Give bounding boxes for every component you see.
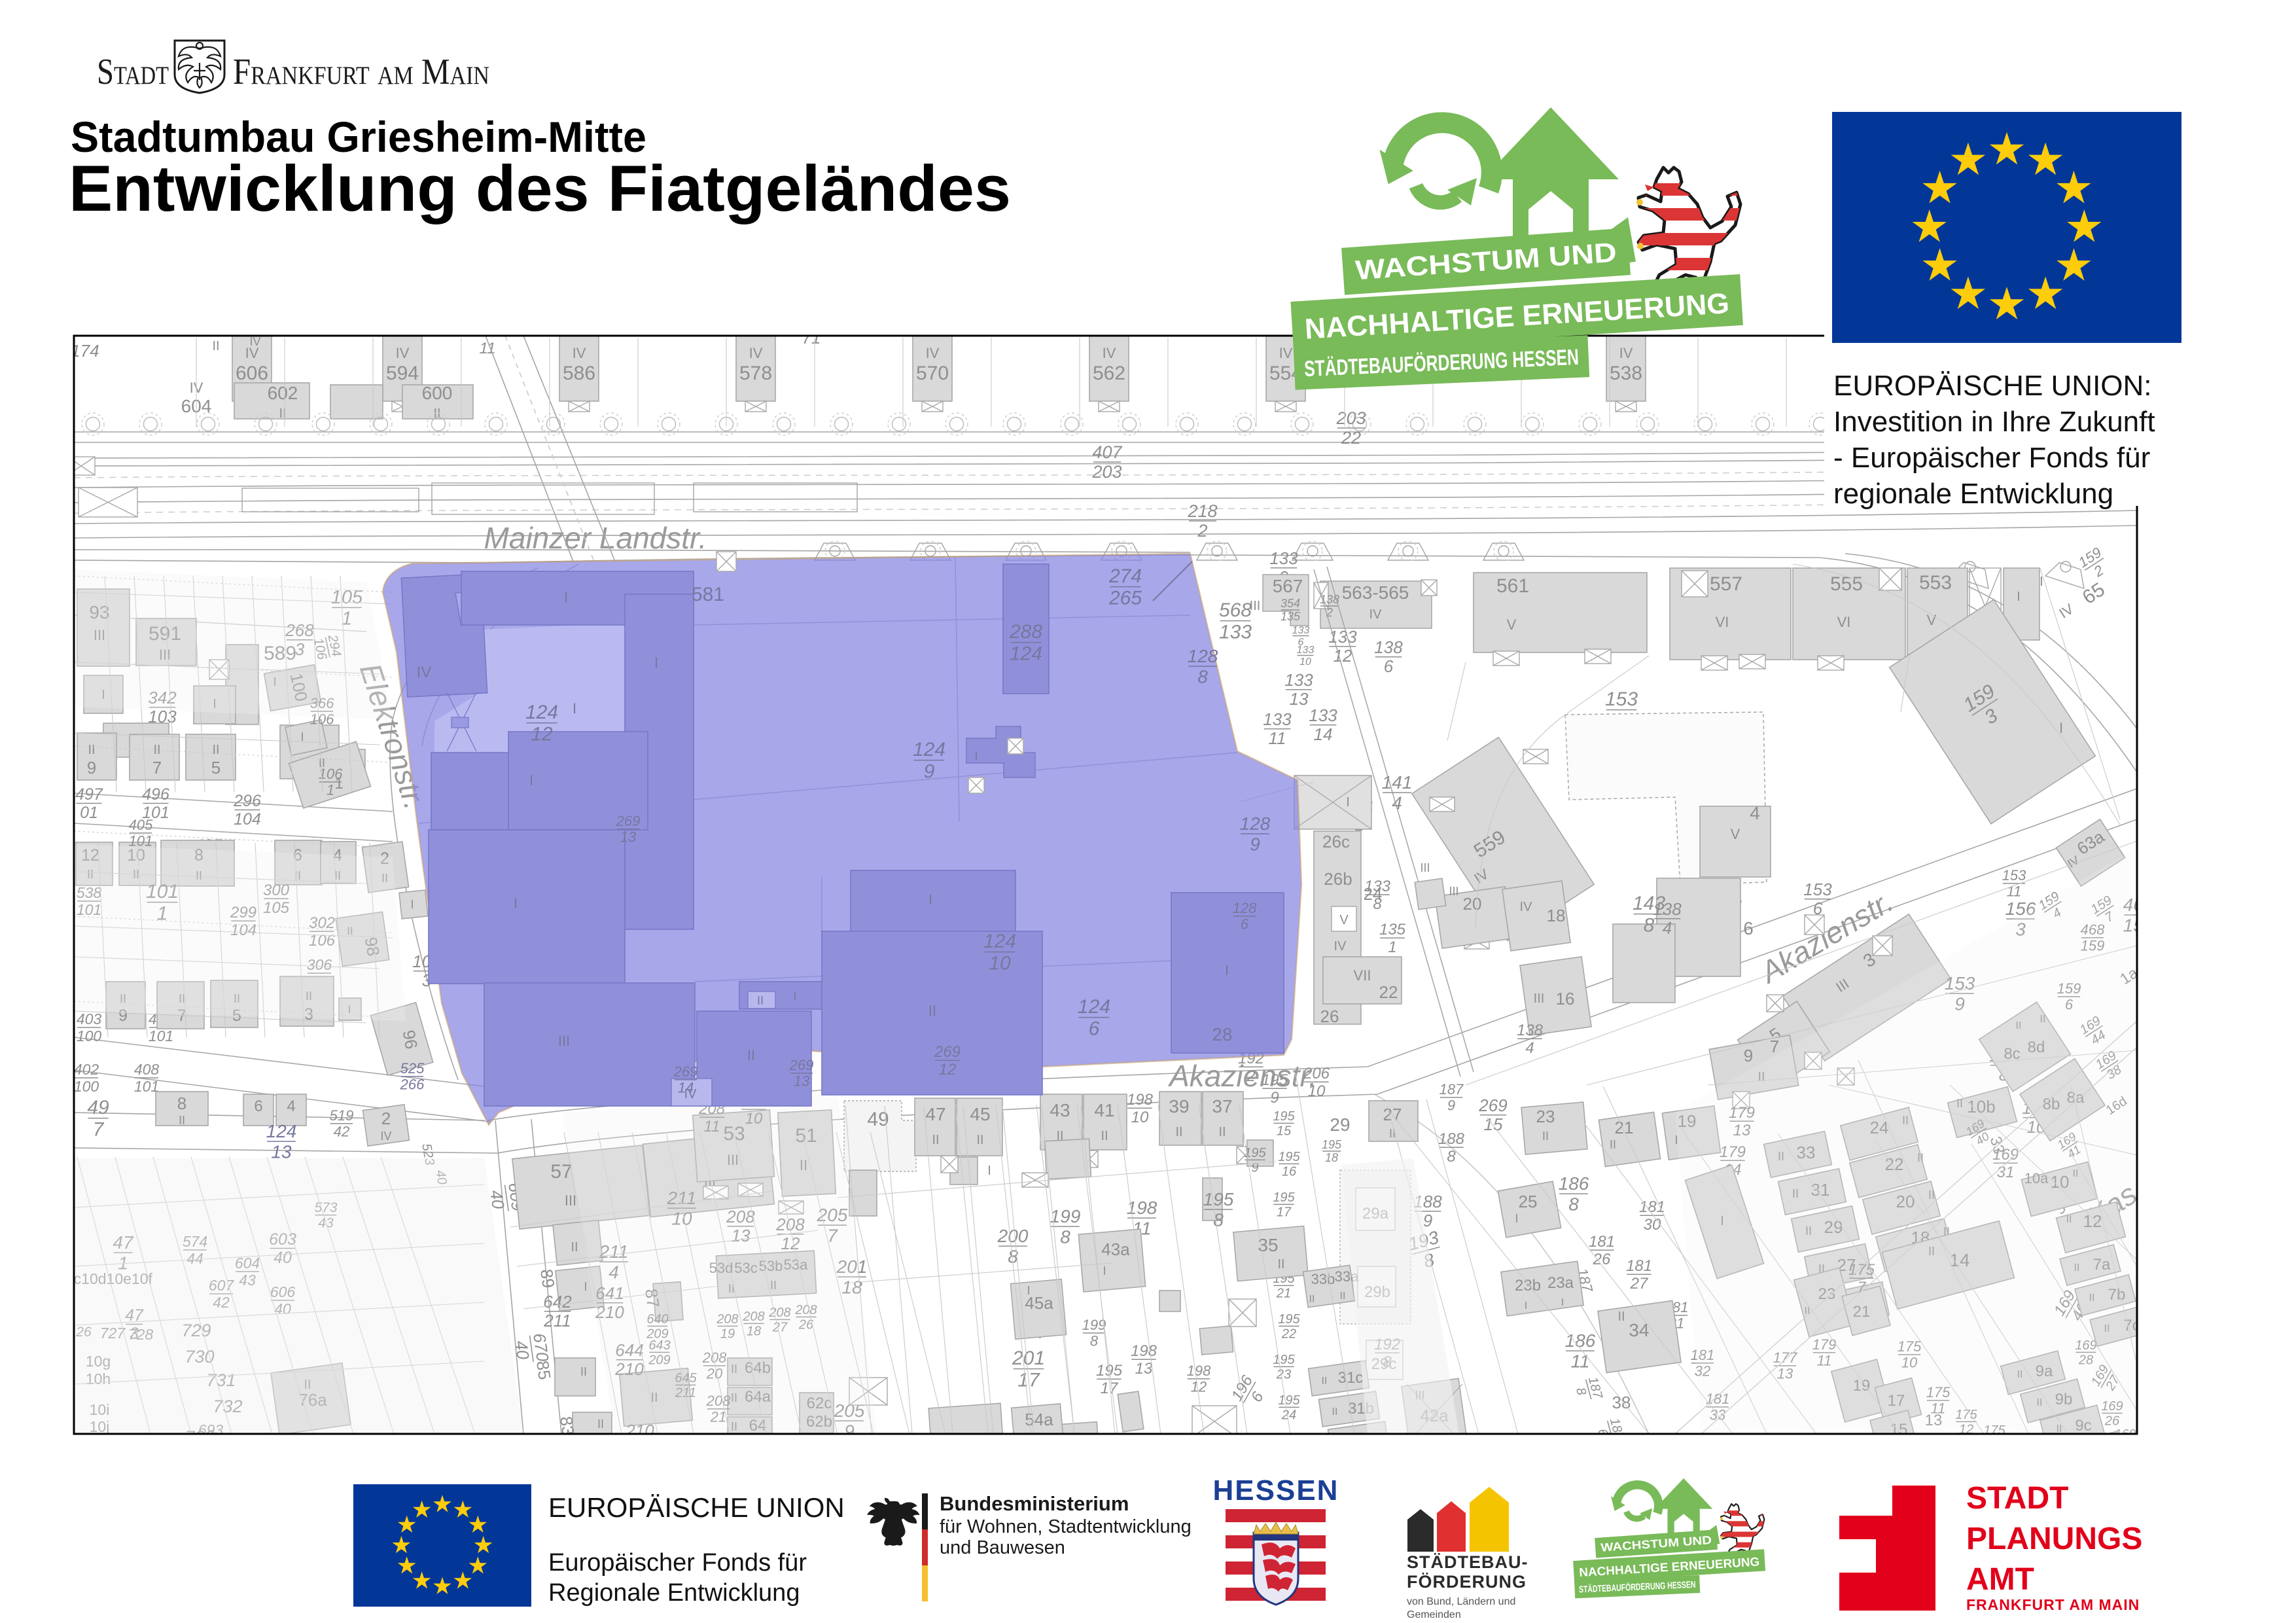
svg-text:I: I: [654, 654, 658, 671]
svg-text:13: 13: [620, 829, 637, 846]
svg-text:266: 266: [400, 1077, 425, 1093]
svg-text:49: 49: [87, 1097, 109, 1118]
svg-text:4: 4: [1663, 918, 1672, 938]
svg-text:296: 296: [233, 792, 261, 810]
svg-text:IV: IV: [1334, 939, 1347, 954]
svg-text:133: 133: [1328, 627, 1357, 647]
svg-text:181: 181: [1639, 1198, 1665, 1216]
svg-text:198: 198: [1187, 1363, 1211, 1379]
svg-text:II: II: [747, 1047, 755, 1063]
svg-text:402: 402: [74, 1061, 99, 1078]
svg-text:II: II: [932, 1133, 939, 1147]
svg-text:18: 18: [1325, 1151, 1338, 1164]
svg-text:IV: IV: [749, 345, 763, 361]
svg-text:IV: IV: [417, 664, 432, 681]
svg-text:567: 567: [1273, 576, 1303, 596]
svg-text:I: I: [2059, 720, 2063, 736]
svg-text:578: 578: [739, 363, 772, 384]
svg-text:6: 6: [1241, 916, 1249, 933]
svg-text:57: 57: [550, 1161, 572, 1183]
svg-text:IV: IV: [249, 335, 260, 348]
svg-text:IV: IV: [1520, 900, 1533, 914]
svg-text:I: I: [573, 700, 576, 717]
svg-text:557: 557: [1710, 573, 1742, 595]
svg-text:195: 195: [1273, 1190, 1295, 1205]
svg-text:II: II: [580, 1365, 587, 1378]
svg-text:VI: VI: [1716, 614, 1729, 630]
svg-text:9: 9: [1744, 1046, 1753, 1065]
svg-text:195: 195: [1203, 1189, 1234, 1209]
svg-text:2: 2: [1197, 521, 1207, 541]
svg-text:I: I: [1225, 962, 1229, 978]
svg-text:525: 525: [400, 1060, 425, 1077]
svg-text:III: III: [1420, 861, 1430, 874]
svg-text:40: 40: [511, 1339, 533, 1361]
svg-text:FRANKFURT AM MAIN: FRANKFURT AM MAIN: [1966, 1596, 2140, 1613]
svg-text:1: 1: [327, 782, 334, 798]
svg-text:AMT: AMT: [1966, 1562, 2034, 1597]
svg-text:198: 198: [1131, 1342, 1157, 1360]
svg-text:I: I: [1103, 1264, 1106, 1277]
svg-text:6: 6: [1743, 918, 1754, 938]
svg-text:V: V: [1339, 913, 1349, 927]
svg-text:128: 128: [1240, 813, 1271, 834]
svg-text:11: 11: [1269, 728, 1286, 748]
svg-text:104: 104: [234, 810, 261, 829]
svg-text:V: V: [1731, 826, 1740, 842]
svg-text:10: 10: [1299, 656, 1311, 668]
svg-text:31c: 31c: [1338, 1369, 1364, 1387]
svg-text:269: 269: [673, 1063, 698, 1080]
svg-text:und Bauwesen: und Bauwesen: [940, 1537, 1065, 1558]
svg-text:EUROPÄISCHE UNION:: EUROPÄISCHE UNION:: [1833, 370, 2152, 402]
svg-text:II: II: [1332, 1406, 1338, 1418]
svg-text:18: 18: [1547, 906, 1566, 925]
svg-text:II: II: [1175, 1125, 1182, 1139]
svg-text:188: 188: [1438, 1130, 1465, 1148]
svg-text:1: 1: [1388, 938, 1396, 956]
svg-text:4: 4: [1750, 803, 1760, 823]
svg-text:I: I: [928, 891, 932, 908]
svg-text:403: 403: [77, 1010, 102, 1027]
svg-text:496: 496: [142, 785, 169, 804]
svg-text:519: 519: [330, 1107, 354, 1124]
svg-text:186: 186: [1565, 1330, 1596, 1351]
svg-text:II: II: [88, 743, 95, 757]
svg-text:I: I: [1027, 1284, 1030, 1297]
svg-text:II: II: [757, 994, 764, 1007]
svg-text:II: II: [1542, 1130, 1549, 1143]
svg-text:23b: 23b: [1515, 1277, 1541, 1294]
svg-text:STADT: STADT: [1966, 1481, 2068, 1516]
svg-text:26b: 26b: [1324, 869, 1352, 889]
svg-text:12: 12: [939, 1061, 957, 1079]
svg-text:II: II: [1218, 1125, 1226, 1139]
svg-text:13: 13: [271, 1141, 292, 1162]
svg-text:288: 288: [1009, 621, 1042, 643]
svg-text:195: 195: [1262, 1071, 1288, 1089]
svg-text:135: 135: [1280, 610, 1301, 623]
svg-text:I: I: [584, 1280, 587, 1293]
svg-text:133: 133: [1269, 548, 1298, 568]
svg-text:15: 15: [1484, 1115, 1503, 1134]
svg-text:29: 29: [1330, 1115, 1350, 1135]
svg-text:26: 26: [1320, 1007, 1339, 1026]
svg-text:HESSEN: HESSEN: [1213, 1474, 1339, 1507]
svg-text:14: 14: [678, 1080, 694, 1096]
svg-text:124: 124: [983, 931, 1016, 952]
svg-text:01: 01: [80, 804, 98, 822]
svg-text:138: 138: [1374, 637, 1403, 657]
svg-text:I: I: [1346, 795, 1350, 810]
svg-text:6: 6: [1089, 1018, 1100, 1040]
svg-text:135: 135: [1379, 921, 1406, 938]
svg-text:8: 8: [1197, 666, 1208, 687]
svg-text:I: I: [987, 1164, 991, 1178]
svg-text:EUROPÄISCHE UNION: EUROPÄISCHE UNION: [548, 1492, 845, 1523]
svg-text:IV: IV: [380, 1130, 391, 1143]
svg-text:III: III: [558, 1033, 570, 1049]
svg-text:III: III: [1449, 885, 1458, 898]
svg-text:Frankfurt am Main: Frankfurt am Main: [233, 52, 489, 92]
svg-text:8: 8: [1447, 1148, 1456, 1166]
svg-text:28: 28: [1212, 1024, 1232, 1044]
svg-text:I: I: [564, 589, 568, 605]
svg-text:VII: VII: [1354, 967, 1371, 984]
svg-text:133: 133: [1284, 670, 1313, 690]
svg-text:2: 2: [1246, 1067, 1255, 1085]
svg-text:27: 27: [1630, 1275, 1649, 1293]
svg-text:4: 4: [1525, 1039, 1534, 1057]
svg-text:17: 17: [1277, 1205, 1292, 1219]
svg-text:274: 274: [1108, 565, 1142, 587]
svg-text:III: III: [1534, 991, 1545, 1006]
svg-text:Mainzer Landstr.: Mainzer Landstr.: [484, 521, 707, 555]
svg-text:2: 2: [381, 1109, 391, 1128]
svg-text:5: 5: [211, 758, 221, 777]
svg-text:6: 6: [1813, 899, 1823, 918]
svg-text:I: I: [410, 898, 414, 911]
svg-text:101: 101: [149, 1027, 173, 1044]
svg-text:269: 269: [1478, 1096, 1507, 1115]
svg-text:581: 581: [692, 584, 724, 605]
svg-text:553: 553: [1919, 572, 1952, 594]
svg-text:20: 20: [1463, 894, 1482, 914]
svg-text:13: 13: [1135, 1360, 1153, 1378]
svg-text:38: 38: [1612, 1393, 1631, 1412]
svg-text:FÖRDERUNG: FÖRDERUNG: [1407, 1572, 1527, 1592]
svg-text:4: 4: [287, 1097, 295, 1115]
svg-text:10: 10: [989, 953, 1011, 974]
svg-text:562: 562: [1093, 363, 1125, 384]
svg-text:III: III: [1250, 599, 1261, 613]
svg-text:41: 41: [1094, 1100, 1114, 1120]
svg-text:I: I: [793, 990, 796, 1003]
svg-text:I: I: [1525, 1300, 1527, 1311]
svg-text:124: 124: [525, 702, 558, 723]
svg-text:für Wohnen, Stadtentwicklung: für Wohnen, Stadtentwicklung: [940, 1516, 1192, 1537]
svg-text:568: 568: [1219, 599, 1252, 621]
svg-text:III: III: [565, 1192, 576, 1209]
svg-text:199: 199: [1082, 1317, 1106, 1333]
svg-text:195: 195: [1278, 1150, 1300, 1164]
svg-text:IV: IV: [926, 345, 940, 361]
svg-text:195: 195: [1278, 1312, 1300, 1327]
svg-text:9: 9: [1270, 1089, 1279, 1107]
svg-text:408: 408: [134, 1061, 160, 1078]
svg-text:563-565: 563-565: [1342, 582, 1409, 603]
svg-text:IV: IV: [396, 345, 410, 361]
svg-text:211: 211: [543, 1311, 571, 1330]
svg-text:153: 153: [2002, 867, 2026, 883]
svg-text:23: 23: [1536, 1107, 1555, 1126]
svg-text:7: 7: [152, 758, 162, 777]
svg-text:14: 14: [1314, 724, 1333, 744]
svg-text:203: 203: [1335, 408, 1366, 428]
svg-text:6: 6: [254, 1097, 262, 1115]
svg-text:II: II: [1277, 1257, 1284, 1272]
svg-text:IV: IV: [1619, 345, 1633, 361]
svg-text:206: 206: [1303, 1065, 1330, 1082]
svg-text:13: 13: [794, 1073, 810, 1090]
svg-text:153: 153: [1605, 688, 1638, 710]
svg-text:II: II: [1309, 1294, 1315, 1305]
svg-text:100: 100: [77, 1027, 102, 1044]
svg-text:25: 25: [1519, 1192, 1538, 1211]
svg-text:II: II: [1101, 1129, 1108, 1143]
svg-text:124: 124: [266, 1121, 297, 1141]
svg-text:133: 133: [1309, 705, 1337, 725]
svg-text:IV: IV: [573, 345, 586, 361]
svg-text:PLANUNGS: PLANUNGS: [1966, 1522, 2142, 1556]
svg-text:407: 407: [1092, 442, 1122, 462]
svg-text:128: 128: [1188, 646, 1218, 666]
svg-text:200: 200: [997, 1226, 1029, 1246]
svg-text:141: 141: [1382, 772, 1413, 793]
svg-text:96: 96: [399, 1029, 422, 1051]
svg-text:187: 187: [1439, 1081, 1464, 1097]
svg-text:594: 594: [386, 363, 419, 384]
svg-text:10: 10: [1308, 1082, 1326, 1100]
svg-text:II: II: [1617, 1310, 1625, 1324]
svg-text:10: 10: [1131, 1109, 1149, 1126]
svg-text:12: 12: [1191, 1379, 1207, 1395]
svg-text:124: 124: [1078, 996, 1110, 1018]
svg-text:V: V: [1507, 616, 1517, 633]
svg-text:602: 602: [268, 383, 298, 403]
svg-text:201: 201: [1012, 1347, 1045, 1369]
svg-text:128: 128: [1233, 900, 1257, 916]
svg-text:12: 12: [1333, 646, 1352, 666]
svg-text:133: 133: [1297, 645, 1315, 656]
svg-text:642: 642: [543, 1292, 572, 1311]
svg-text:Europäischer Fonds für: Europäischer Fonds für: [548, 1549, 807, 1577]
svg-text:IV: IV: [1369, 607, 1383, 622]
svg-text:195: 195: [1273, 1109, 1295, 1124]
svg-text:8: 8: [177, 1094, 186, 1113]
svg-text:II: II: [279, 406, 286, 421]
svg-text:586: 586: [563, 363, 595, 384]
svg-text:561: 561: [1496, 575, 1529, 597]
svg-text:21: 21: [1276, 1286, 1291, 1300]
svg-text:9: 9: [1251, 1160, 1258, 1175]
svg-text:I: I: [1515, 1212, 1518, 1225]
svg-text:181: 181: [1626, 1257, 1652, 1275]
svg-text:269: 269: [934, 1043, 961, 1061]
svg-text:133: 133: [1263, 709, 1292, 729]
svg-text:37: 37: [1212, 1096, 1232, 1116]
svg-text:8: 8: [1644, 915, 1655, 936]
svg-text:IV: IV: [1103, 345, 1116, 361]
svg-text:23: 23: [1276, 1367, 1291, 1382]
svg-text:538: 538: [1610, 363, 1642, 384]
svg-text:16: 16: [1282, 1164, 1297, 1179]
svg-text:405: 405: [129, 817, 153, 833]
svg-text:24: 24: [1281, 1408, 1296, 1422]
svg-text:8: 8: [1060, 1226, 1070, 1247]
svg-text:II: II: [179, 1114, 185, 1127]
svg-text:II: II: [212, 743, 219, 757]
svg-text:195: 195: [1322, 1138, 1342, 1151]
svg-text:195: 195: [1273, 1353, 1295, 1367]
svg-text:89: 89: [537, 1268, 559, 1289]
svg-text:13: 13: [1290, 689, 1309, 709]
svg-text:7: 7: [93, 1119, 105, 1141]
svg-text:Gemeinden: Gemeinden: [1407, 1609, 1461, 1620]
svg-text:354: 354: [1280, 597, 1300, 610]
svg-text:26c: 26c: [1322, 832, 1350, 851]
svg-text:22: 22: [1341, 428, 1361, 448]
svg-text:9: 9: [924, 761, 935, 783]
svg-text:- Europäischer Fonds für: - Europäischer Fonds für: [1833, 442, 2150, 474]
svg-text:269: 269: [616, 813, 641, 829]
svg-text:153: 153: [1803, 880, 1832, 899]
svg-text:regionale Entwicklung: regionale Entwicklung: [1833, 478, 2113, 510]
svg-text:I: I: [1561, 1297, 1564, 1308]
svg-text:8: 8: [1090, 1333, 1099, 1349]
svg-text:II: II: [1322, 1376, 1328, 1387]
svg-text:22: 22: [1281, 1327, 1296, 1341]
svg-text:133: 133: [1219, 622, 1252, 643]
svg-text:45: 45: [970, 1104, 990, 1124]
svg-text:198: 198: [1127, 1091, 1154, 1109]
svg-text:II: II: [571, 1240, 578, 1255]
svg-text:24: 24: [1364, 884, 1383, 904]
svg-text:23a: 23a: [1547, 1274, 1574, 1292]
svg-text:16: 16: [1556, 989, 1575, 1008]
svg-text:22: 22: [1379, 982, 1398, 1002]
svg-text:II: II: [212, 339, 219, 353]
svg-text:15: 15: [1277, 1124, 1292, 1138]
svg-text:33b: 33b: [1311, 1271, 1335, 1287]
svg-text:von Bund, Ländern und: von Bund, Ländern und: [1407, 1596, 1515, 1607]
svg-text:124: 124: [1010, 643, 1042, 665]
svg-text:218: 218: [1187, 501, 1217, 521]
svg-text:265: 265: [1108, 588, 1142, 609]
svg-text:47: 47: [925, 1104, 945, 1124]
svg-text:II: II: [976, 1133, 983, 1147]
svg-text:Stadt: Stadt: [97, 52, 169, 92]
svg-text:39: 39: [1169, 1096, 1189, 1116]
svg-text:Entwicklung des Fiatgeländes: Entwicklung des Fiatgeländes: [69, 152, 1011, 224]
svg-text:143: 143: [1633, 893, 1665, 914]
svg-text:100: 100: [74, 1078, 99, 1095]
svg-text:497: 497: [75, 785, 103, 804]
svg-text:124: 124: [913, 739, 945, 760]
svg-text:I: I: [974, 750, 978, 763]
svg-text:43a: 43a: [1101, 1240, 1130, 1259]
svg-text:8: 8: [1568, 1194, 1579, 1214]
svg-text:Investition in Ihre Zukunft: Investition in Ihre Zukunft: [1833, 406, 2155, 438]
svg-text:600: 600: [422, 383, 453, 403]
svg-text:I: I: [2017, 590, 2021, 604]
svg-text:7: 7: [1770, 1037, 1779, 1056]
svg-text:II: II: [1610, 1138, 1616, 1151]
svg-text:203: 203: [1091, 462, 1122, 482]
svg-text:STÄDTEBAU-: STÄDTEBAU-: [1407, 1552, 1528, 1572]
svg-text:269: 269: [789, 1057, 814, 1073]
svg-text:II: II: [1340, 1291, 1346, 1302]
svg-text:12: 12: [531, 724, 553, 745]
svg-text:606: 606: [236, 363, 268, 384]
svg-text:9: 9: [1250, 834, 1260, 854]
svg-text:Bundesministerium: Bundesministerium: [940, 1492, 1129, 1515]
svg-text:174: 174: [71, 341, 99, 361]
svg-text:138: 138: [1517, 1022, 1544, 1039]
svg-text:IV: IV: [1279, 345, 1293, 361]
svg-text:199: 199: [1050, 1206, 1081, 1226]
svg-text:30: 30: [1644, 1216, 1661, 1234]
svg-text:42: 42: [334, 1124, 349, 1140]
svg-text:133: 133: [1292, 625, 1310, 636]
svg-text:I: I: [514, 895, 518, 912]
svg-text:570: 570: [916, 363, 949, 384]
svg-text:II: II: [597, 1418, 604, 1431]
svg-text:21: 21: [1615, 1118, 1634, 1137]
svg-text:9: 9: [1447, 1097, 1455, 1114]
svg-text:VI: VI: [1837, 614, 1851, 630]
svg-text:181: 181: [1589, 1233, 1615, 1251]
svg-text:43: 43: [1050, 1100, 1070, 1120]
svg-text:6: 6: [1384, 656, 1394, 676]
svg-text:11: 11: [1570, 1351, 1589, 1371]
svg-text:I: I: [529, 772, 533, 789]
svg-text:85: 85: [533, 1359, 555, 1381]
svg-text:186: 186: [1559, 1173, 1589, 1194]
svg-text:4: 4: [1392, 793, 1402, 813]
svg-text:Regionale Entwicklung: Regionale Entwicklung: [548, 1579, 800, 1607]
svg-text:II: II: [928, 1003, 936, 1019]
svg-text:9: 9: [87, 758, 96, 777]
svg-text:195: 195: [1278, 1393, 1300, 1408]
